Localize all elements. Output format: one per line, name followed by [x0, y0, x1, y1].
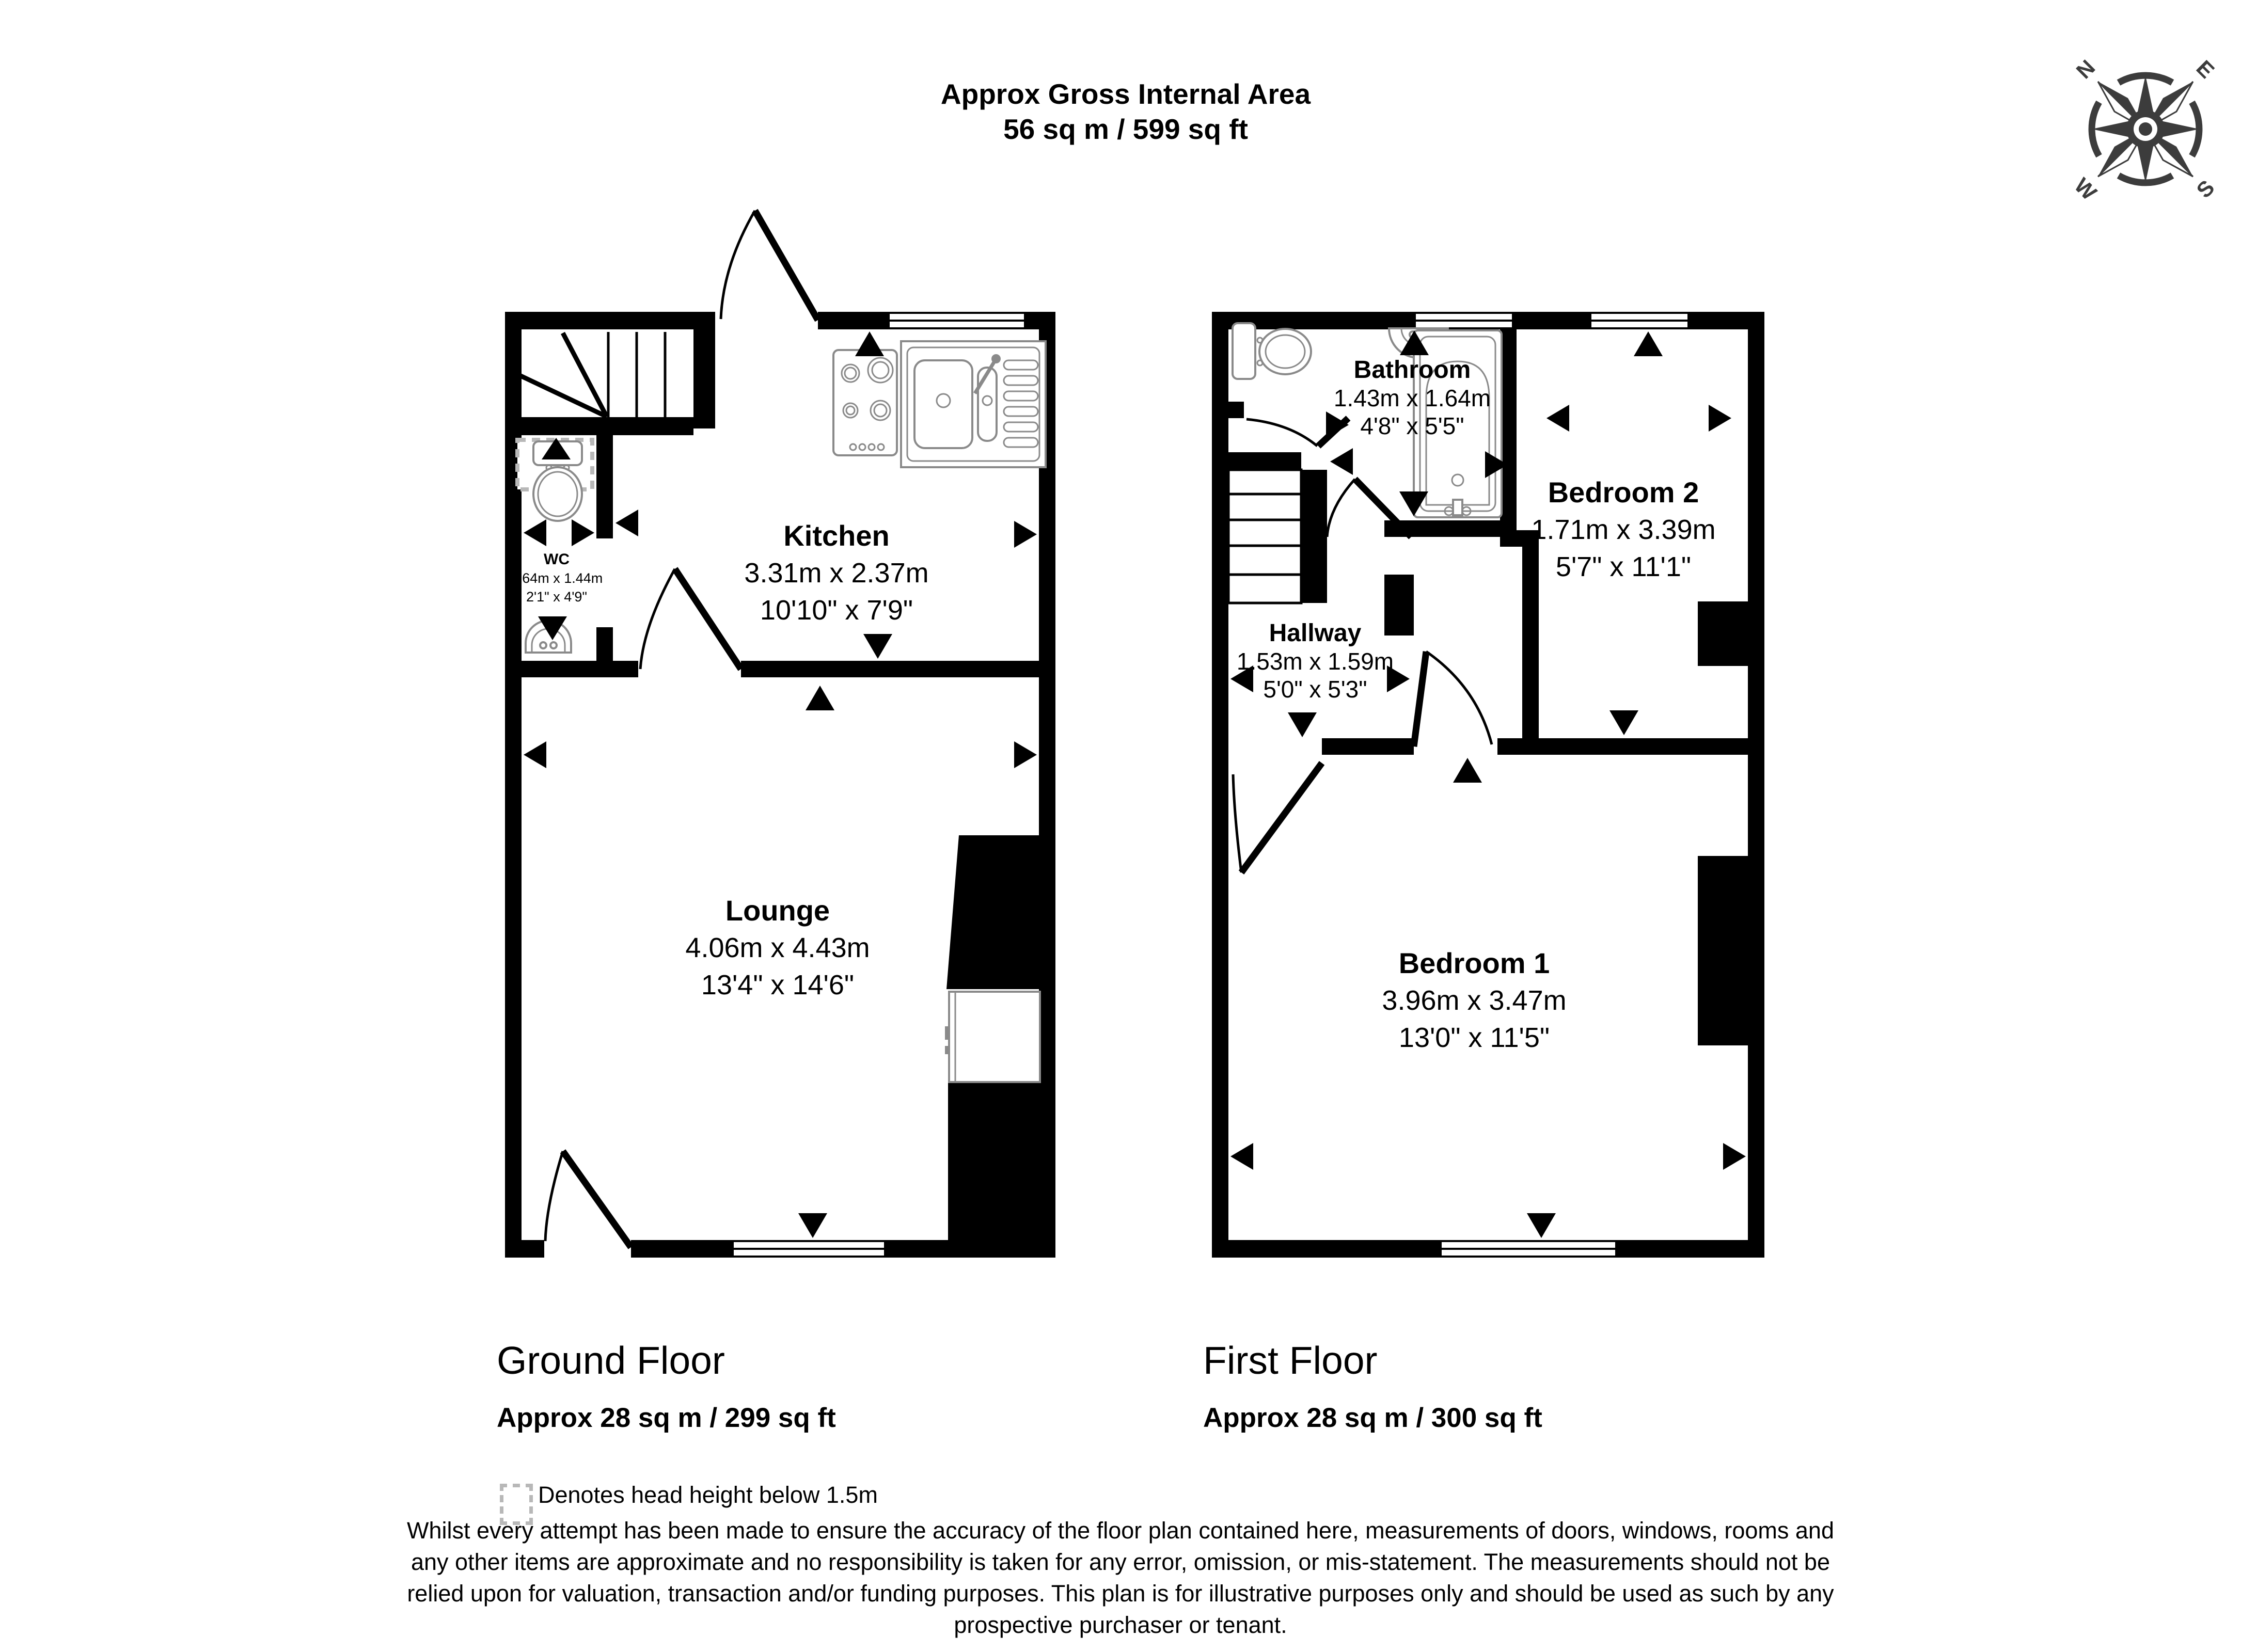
rear-door	[545, 1151, 631, 1247]
bedroom1-imperial: 13'0" x 11'5"	[1382, 1019, 1566, 1056]
bedroom2-imperial: 5'7" x 11'1"	[1531, 548, 1715, 585]
ground-floor-title: Ground Floor	[497, 1338, 725, 1383]
bedroom1-door	[1233, 763, 1322, 872]
wc-imperial: 2'1" x 4'9"	[511, 587, 603, 606]
first-floor-plan	[1212, 305, 1764, 1260]
hallway-metric: 1.53m x 1.59m	[1237, 647, 1394, 675]
compass-icon: N E S W	[2063, 46, 2228, 212]
disclaimer: Whilst every attempt has been made to en…	[407, 1515, 1834, 1641]
floorplan-page: Approx Gross Internal Area 56 sq m / 599…	[0, 0, 2241, 1652]
bedroom2-metric: 1.71m x 3.39m	[1531, 511, 1715, 548]
landing-door	[1327, 479, 1411, 537]
kitchen-name: Kitchen	[744, 517, 928, 554]
bathroom-window	[1415, 313, 1513, 328]
hallway-name: Hallway	[1237, 619, 1394, 647]
lounge-imperial: 13'4" x 14'6"	[685, 966, 870, 1004]
compass-s-label: S	[2191, 175, 2219, 202]
bedroom1-name: Bedroom 1	[1382, 945, 1566, 982]
room-label-bathroom: Bathroom 1.43m x 1.64m 4'8" x 5'5"	[1334, 356, 1491, 440]
kitchen-sink-icon	[901, 341, 1046, 467]
staircase-first-icon	[1228, 470, 1301, 603]
chimney-breast	[945, 835, 1055, 1241]
compass-w-label: W	[2070, 173, 2102, 205]
ground-floor-area: Approx 28 sq m / 299 sq ft	[497, 1402, 836, 1434]
disclaimer-line-2: any other items are approximate and no r…	[407, 1546, 1834, 1578]
bathroom-metric: 1.43m x 1.64m	[1334, 384, 1491, 412]
ground-floor-plan	[505, 196, 1055, 1260]
first-floor-title: First Floor	[1203, 1338, 1378, 1383]
bathroom-imperial: 4'8" x 5'5"	[1334, 412, 1491, 440]
room-label-wc: WC 0.64m x 1.44m 2'1" x 4'9"	[511, 550, 603, 606]
first-floor-area: Approx 28 sq m / 300 sq ft	[1203, 1402, 1542, 1434]
kitchen-hob-icon	[833, 350, 897, 455]
wc-metric: 0.64m x 1.44m	[511, 569, 603, 587]
room-label-bedroom2: Bedroom 2 1.71m x 3.39m 5'7" x 11'1"	[1531, 474, 1715, 585]
wc-name: WC	[511, 550, 603, 569]
lounge-metric: 4.06m x 4.43m	[685, 929, 870, 966]
bedroom2-name: Bedroom 2	[1531, 474, 1715, 511]
lounge-window	[733, 1241, 885, 1257]
kitchen-metric: 3.31m x 2.37m	[744, 554, 928, 592]
disclaimer-line-3: relied upon for valuation, transaction a…	[407, 1578, 1834, 1609]
bedroom1-metric: 3.96m x 3.47m	[1382, 982, 1566, 1019]
page-title: Approx Gross Internal Area 56 sq m / 599…	[941, 76, 1311, 147]
kitchen-window	[889, 313, 1025, 328]
bedroom2-door	[1414, 652, 1492, 746]
room-label-hallway: Hallway 1.53m x 1.59m 5'0" x 5'3"	[1237, 619, 1394, 703]
staircase-icon	[517, 332, 665, 417]
front-door	[721, 211, 818, 320]
kitchen-imperial: 10'10" x 7'9"	[744, 592, 928, 629]
bathroom-name: Bathroom	[1334, 356, 1491, 384]
bedroom1-window	[1441, 1241, 1616, 1257]
room-label-lounge: Lounge 4.06m x 4.43m 13'4" x 14'6"	[685, 892, 870, 1004]
toilet-icon	[1233, 323, 1311, 379]
head-height-legend-text: Denotes head height below 1.5m	[538, 1482, 878, 1508]
disclaimer-line-1: Whilst every attempt has been made to en…	[407, 1515, 1834, 1546]
gross-area-title: Approx Gross Internal Area	[941, 76, 1311, 112]
hallway-imperial: 5'0" x 5'3"	[1237, 675, 1394, 703]
compass-e-label: E	[2191, 55, 2219, 83]
compass-n-label: N	[2072, 55, 2100, 84]
bedroom2-window	[1590, 313, 1688, 328]
room-label-kitchen: Kitchen 3.31m x 2.37m 10'10" x 7'9"	[744, 517, 928, 629]
lounge-name: Lounge	[685, 892, 870, 929]
gross-area-value: 56 sq m / 599 sq ft	[941, 112, 1311, 147]
lounge-door	[640, 569, 741, 669]
disclaimer-line-4: prospective purchaser or tenant.	[407, 1609, 1834, 1641]
room-label-bedroom1: Bedroom 1 3.96m x 3.47m 13'0" x 11'5"	[1382, 945, 1566, 1056]
